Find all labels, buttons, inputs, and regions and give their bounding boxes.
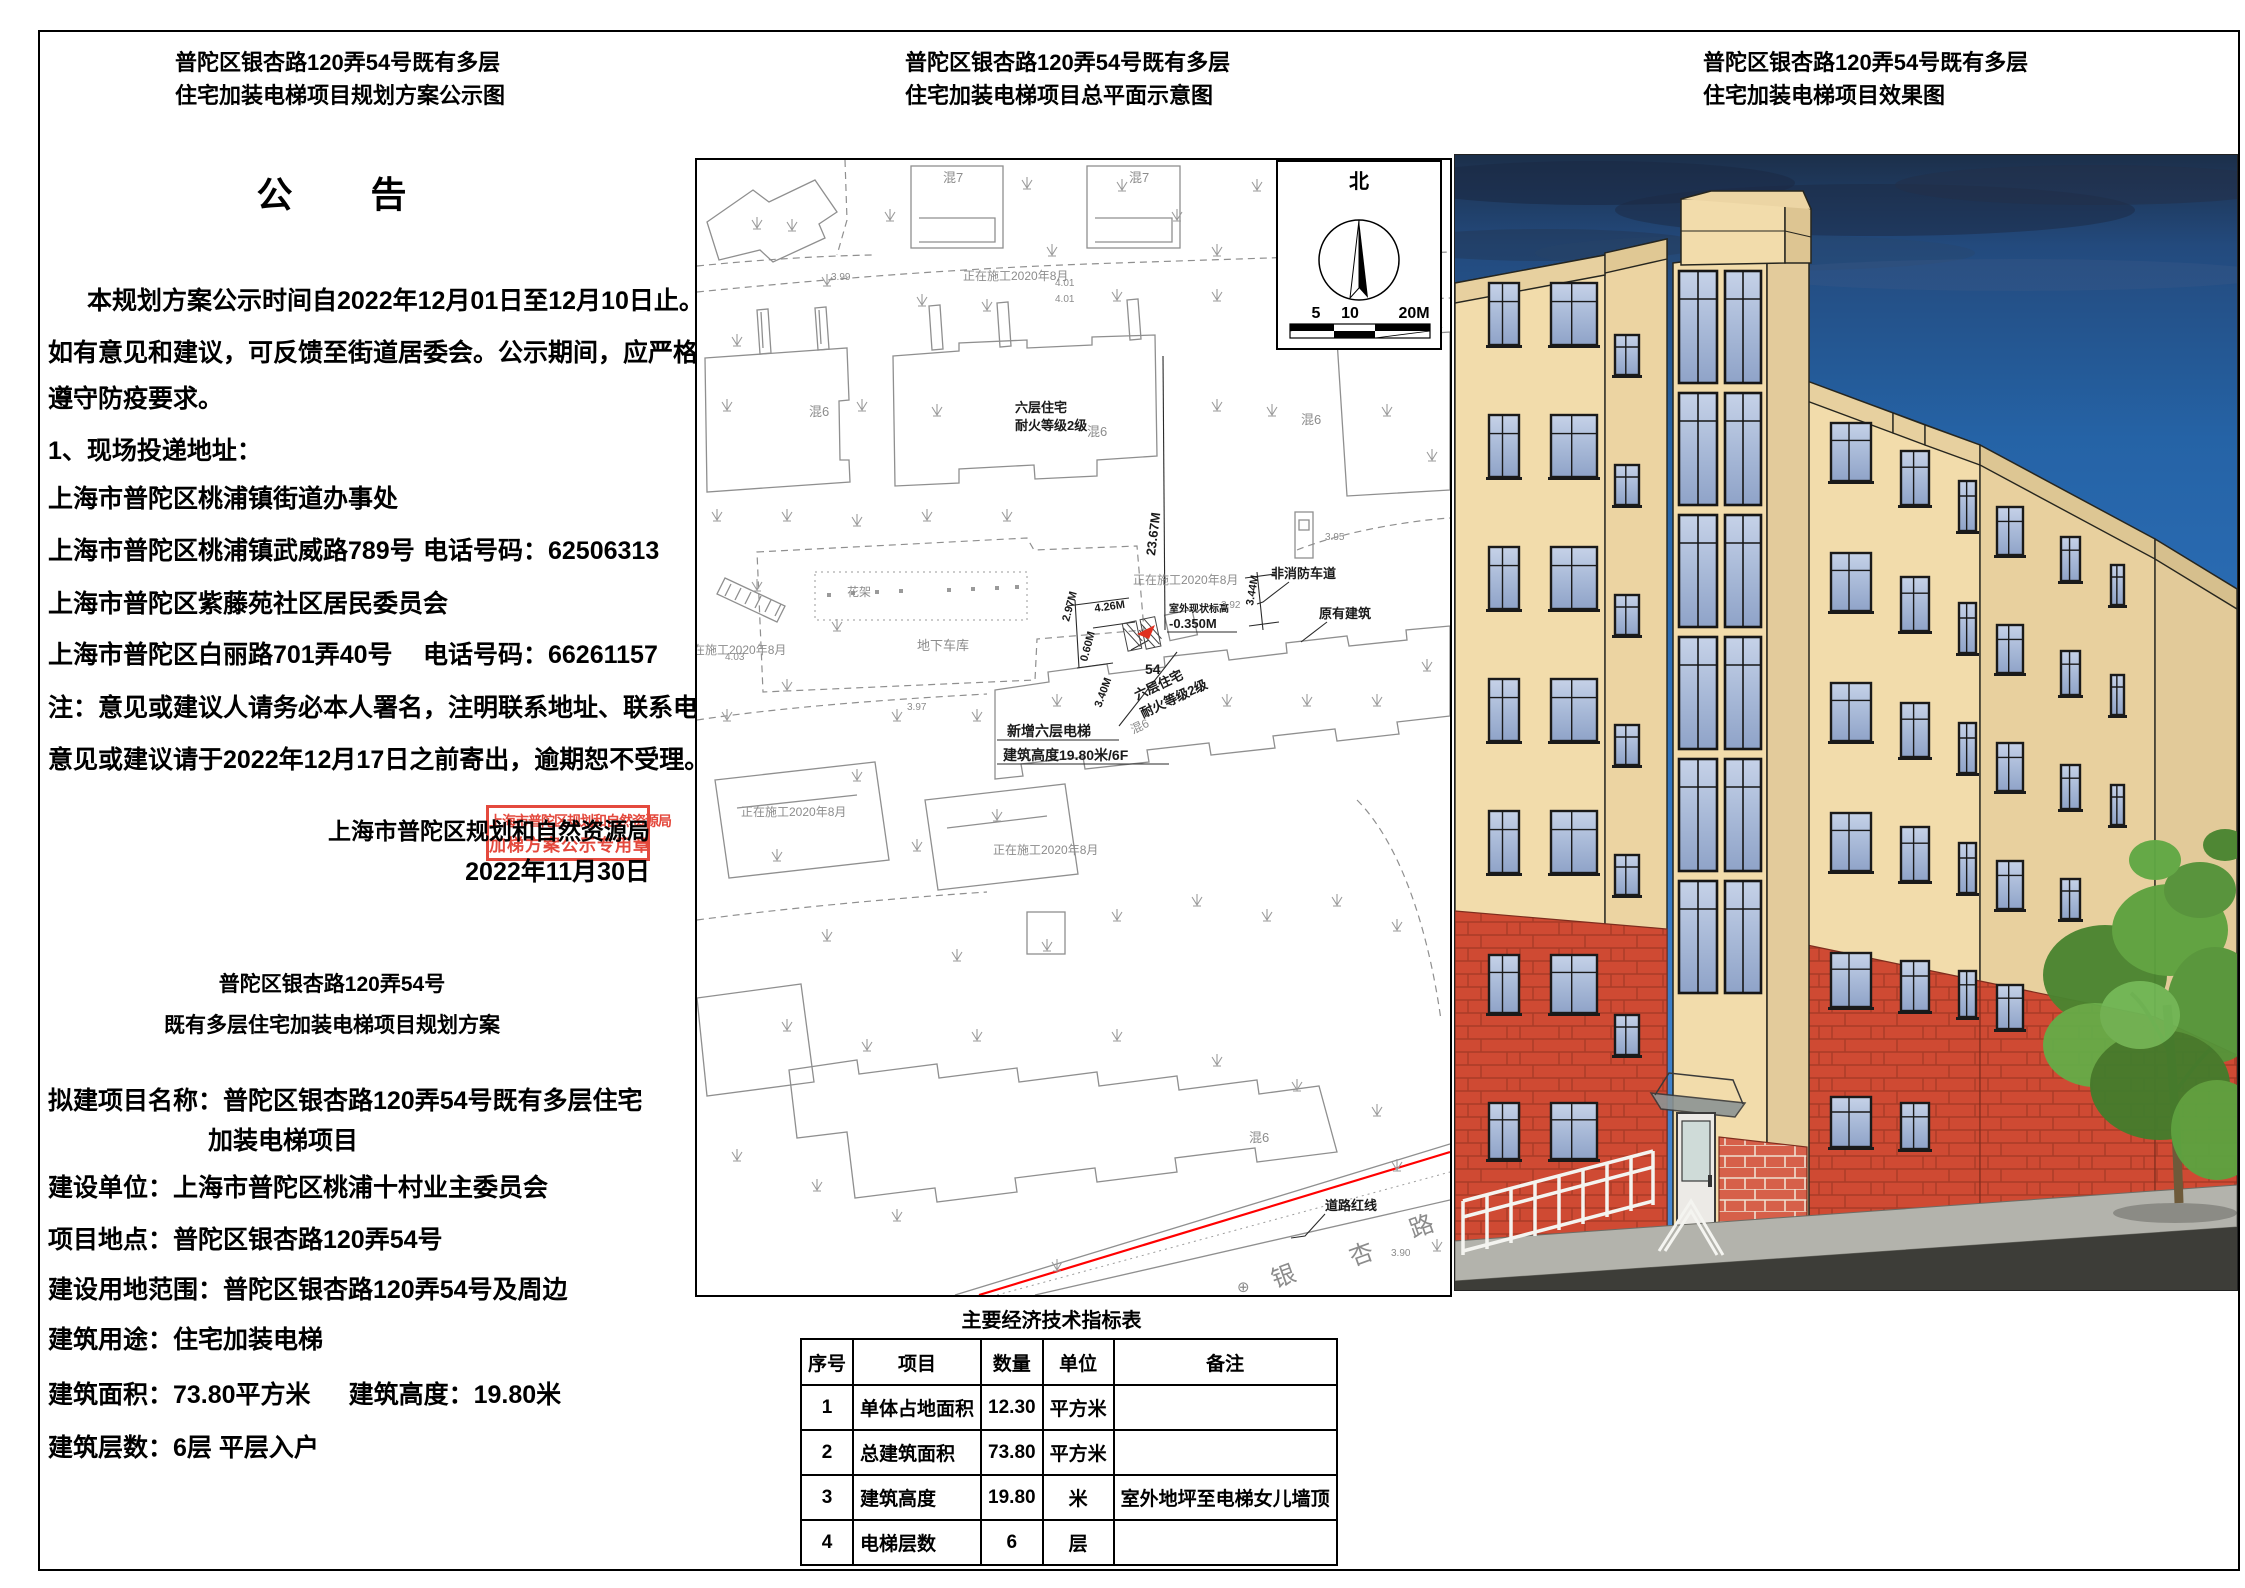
map-label: 正在施工2020年8月 [741, 805, 846, 819]
map-label: 3.90 [1391, 1248, 1411, 1259]
window [1956, 843, 1979, 896]
scale-bar [1290, 324, 1430, 338]
tree-symbol [1392, 919, 1402, 931]
window [1898, 827, 1932, 884]
window [1956, 723, 1979, 776]
elevator-glass-panel [1725, 393, 1761, 505]
building-rendering [1455, 155, 2237, 1290]
eco-table-cell: 73.80 [981, 1430, 1043, 1475]
compass-scale-box: 北 5 10 20M [1276, 160, 1442, 350]
window [1486, 547, 1522, 612]
window [1828, 553, 1874, 614]
window [1548, 547, 1600, 612]
note-line: 意见或建议请于2022年12月17日之前寄出，逾期恕不受理。 [48, 740, 709, 776]
tree-symbol [1427, 449, 1437, 461]
tree-symbol [1212, 244, 1222, 256]
north-label: 北 [1349, 170, 1369, 193]
window [1994, 985, 2026, 1032]
address-text: 上海市普陀区紫藤苑社区居民委员会 [48, 590, 448, 618]
tree-symbol [1212, 1054, 1222, 1066]
map-label: 3.97 [907, 702, 927, 713]
col-header: 单位 [1043, 1339, 1114, 1385]
right-panel-title: 普陀区银杏路120弄54号既有多层 住宅加装电梯项目效果图 [1703, 46, 2028, 112]
map-label: 4.01 [1055, 294, 1075, 305]
building-rendering-drawing [1455, 155, 2237, 1290]
map-label: 路 [1406, 1210, 1438, 1244]
address-line: 上海市普陀区紫藤苑社区居民委员会 [48, 584, 448, 620]
window [2058, 537, 2083, 584]
tree-symbol [852, 514, 862, 526]
detail-line: 项目地点：普陀区银杏路120弄54号 [48, 1220, 443, 1256]
tree-symbol [1422, 659, 1432, 671]
tree-symbol [917, 294, 927, 306]
address-phone: 电话号码：66261157 [423, 635, 658, 671]
window [1486, 811, 1522, 876]
window [2108, 675, 2127, 718]
window [1486, 679, 1522, 744]
col-header: 备注 [1114, 1339, 1337, 1385]
window [1994, 743, 2026, 794]
col-header: 项目 [853, 1339, 981, 1385]
tree-symbol [1382, 404, 1392, 416]
address-phone: 电话号码：62506313 [423, 531, 659, 567]
map-label: 混6 [1249, 1130, 1269, 1145]
window [1828, 683, 1874, 744]
eco-table-cell: 6 [981, 1520, 1043, 1565]
stamp-line2: 加梯方案公示专用章 [489, 831, 647, 856]
eco-table-cell: 层 [1043, 1520, 1114, 1565]
map-label: 室外现状标高 [1169, 602, 1229, 615]
map-label: 54 [1145, 661, 1161, 677]
tree-symbol [885, 209, 895, 221]
window [1548, 415, 1600, 480]
window [1612, 725, 1642, 768]
eco-table-row: 1单体占地面积12.30平方米 [801, 1385, 1337, 1430]
tree-symbol [1047, 244, 1057, 256]
window [2058, 879, 2083, 922]
window [1486, 283, 1522, 348]
elevator-glass-panel [1679, 881, 1717, 993]
window [1956, 971, 1979, 1020]
middle-title-line1: 普陀区银杏路120弄54号既有多层 [905, 46, 1230, 79]
tree-symbol [1372, 1104, 1382, 1116]
window [1898, 577, 1932, 634]
stamp-line1: 上海市普陀区规划和自然资源局 [489, 811, 647, 831]
map-label: 道路红线 [1325, 1198, 1377, 1213]
detail-line: 建筑用途：住宅加装电梯 [48, 1320, 323, 1356]
middle-title-line2: 住宅加装电梯项目总平面示意图 [905, 79, 1230, 112]
map-label: 混6 [1128, 716, 1151, 737]
elevator-glass-panel [1679, 393, 1717, 505]
tree-symbol [722, 709, 732, 721]
planning-notice-sheet: 普陀区银杏路120弄54号既有多层 住宅加装电梯项目规划方案公示图 公 告 本规… [0, 0, 2245, 1588]
eco-table-cell: 平方米 [1043, 1385, 1114, 1430]
address-text: 上海市普陀区桃浦镇街道办事处 [48, 485, 398, 513]
eco-table-cell: 3 [801, 1475, 853, 1520]
tree-symbol [782, 1019, 792, 1031]
window [1612, 855, 1642, 898]
tree-symbol [982, 299, 992, 311]
tree-symbol [1112, 1029, 1122, 1041]
elevator-glass-panel [1679, 515, 1717, 627]
tree-symbol [772, 849, 782, 861]
note-line: 注：意见或建议人请务必本人署名，注明联系地址、联系电话。 [48, 688, 748, 724]
tree-symbol [1267, 404, 1277, 416]
col-header: 序号 [801, 1339, 853, 1385]
tree-symbol [822, 929, 832, 941]
tree-symbol [787, 219, 797, 231]
map-label: 3.40M [1093, 676, 1115, 709]
map-label: 正在施工2020年8月 [1133, 573, 1238, 587]
eco-table-cell: 12.30 [981, 1385, 1043, 1430]
eco-table-header-row: 序号 项目 数量 单位 备注 [801, 1339, 1337, 1385]
window [1828, 1097, 1874, 1150]
window [1612, 465, 1642, 508]
window [1898, 451, 1932, 508]
map-label: 23.67M [1143, 511, 1163, 556]
tree-symbol [1112, 289, 1122, 301]
map-label: 正在施工2020年8月 [697, 643, 786, 657]
map-label: 2.97M [1060, 590, 1080, 623]
address-list-heading: 1、现场投递地址： [48, 431, 262, 467]
scheme-title: 普陀区银杏路120弄54号 既有多层住宅加装电梯项目规划方案 [82, 964, 582, 1046]
tree-symbol [1022, 177, 1032, 189]
map-label: 非消防车道 [1271, 566, 1336, 581]
map-label: 六层住宅 [1015, 400, 1067, 415]
eco-table-cell: 4 [801, 1520, 853, 1565]
right-title-line2: 住宅加装电梯项目效果图 [1703, 79, 2028, 112]
eco-table-cell: 平方米 [1043, 1430, 1114, 1475]
tree-symbol [922, 509, 932, 521]
window [1898, 961, 1932, 1014]
window [1898, 1103, 1932, 1152]
tree-symbol [752, 579, 762, 591]
elevator-glass-panel [1725, 759, 1761, 871]
eco-table-row: 4电梯层数6层 [801, 1520, 1337, 1565]
window [1612, 335, 1642, 378]
eco-table-title: 主要经济技术指标表 [800, 1304, 1303, 1333]
map-label: 混6 [1087, 424, 1107, 439]
window [2058, 651, 2083, 698]
detail-line: 拟建项目名称：普陀区银杏路120弄54号既有多层住宅 [48, 1081, 643, 1117]
tree-symbol [992, 809, 1002, 821]
tree-symbol [952, 949, 962, 961]
eco-table-cell: 总建筑面积 [853, 1430, 981, 1475]
map-label: ⊕ [1237, 1279, 1250, 1295]
map-label: 新增六层电梯 [1007, 723, 1091, 739]
map-label: 花架 [847, 584, 871, 599]
tree-symbol [712, 509, 722, 521]
left-panel-title: 普陀区银杏路120弄54号既有多层 住宅加装电梯项目规划方案公示图 [175, 46, 505, 112]
scale-tick-20m: 20M [1398, 305, 1429, 322]
eco-table-cell: 19.80 [981, 1475, 1043, 1520]
map-label: 原有建筑 [1319, 606, 1371, 621]
scale-tick-5: 5 [1312, 305, 1321, 322]
elevator-glass-panel [1725, 881, 1761, 993]
window [1828, 423, 1874, 484]
eco-table-cell [1114, 1385, 1337, 1430]
tree-symbol [972, 1029, 982, 1041]
window [1898, 703, 1932, 760]
map-label: 4.26M [1094, 599, 1126, 615]
tree-symbol [1222, 694, 1232, 706]
map-label: 银 [1268, 1260, 1300, 1294]
middle-panel-title: 普陀区银杏路120弄54号既有多层 住宅加装电梯项目总平面示意图 [905, 46, 1230, 112]
window [1548, 811, 1600, 876]
intro-line: 如有意见和建议，可反馈至街道居委会。公示期间，应严格 [48, 333, 698, 369]
window [1548, 1103, 1600, 1162]
tree-symbol [1212, 399, 1222, 411]
tree-symbol [1042, 939, 1052, 951]
eco-table-cell [1114, 1430, 1337, 1475]
map-label: 混6 [1301, 412, 1321, 427]
scheme-title-line1: 普陀区银杏路120弄54号 [82, 964, 582, 1005]
eco-table-cell: 1 [801, 1385, 853, 1430]
map-label: 混6 [809, 404, 829, 419]
elevator-glass-panel [1679, 759, 1717, 871]
detail-segment: 建筑面积：73.80平方米 [48, 1381, 311, 1409]
eco-table-cell [1114, 1520, 1337, 1565]
elevator-glass-panel [1725, 637, 1761, 749]
detail-line: 加装电梯项目 [208, 1121, 358, 1157]
map-label: 耐火等级2级 [1015, 418, 1088, 433]
tree-symbol [722, 399, 732, 411]
window [1828, 953, 1874, 1010]
map-label: 3.92 [1221, 600, 1241, 611]
tree-symbol [752, 217, 762, 229]
window [1994, 861, 2026, 912]
tree-symbol [1332, 894, 1342, 906]
window [1612, 1015, 1642, 1058]
tree-symbol [782, 509, 792, 521]
tree-symbol [1212, 289, 1222, 301]
window [1828, 813, 1874, 874]
tree-symbol [1112, 909, 1122, 921]
window [2058, 765, 2083, 812]
col-header: 数量 [981, 1339, 1043, 1385]
eco-table-cell: 电梯层数 [853, 1520, 981, 1565]
right-title-line1: 普陀区银杏路120弄54号既有多层 [1703, 46, 2028, 79]
eco-table-cell: 室外地坪至电梯女儿墙顶 [1114, 1475, 1337, 1520]
tree-symbol [1192, 894, 1202, 906]
north-compass-icon: 北 5 10 20M [1278, 162, 1440, 348]
address-line: 上海市普陀区桃浦镇武威路789号 电话号码：62506313 [48, 531, 415, 567]
tree-symbol [892, 1209, 902, 1221]
map-label: 杏 [1346, 1238, 1378, 1272]
map-dimension-lines [997, 356, 1327, 1238]
map-label: 建筑高度19.80米/6F [1003, 747, 1129, 763]
tree-symbol [1432, 1239, 1442, 1251]
tree-symbol [1002, 509, 1012, 521]
window [2108, 785, 2127, 828]
address-line: 上海市普陀区白丽路701弄40号 电话号码：66261157 [48, 635, 393, 671]
map-label: 3.99 [831, 272, 851, 283]
map-label: 4.01 [1055, 278, 1075, 289]
window [1994, 507, 2026, 558]
tree-symbol [1262, 909, 1272, 921]
eco-table-cell: 单体占地面积 [853, 1385, 981, 1430]
tree-symbol [912, 839, 922, 851]
address-text: 上海市普陀区桃浦镇武威路789号 [48, 537, 415, 565]
tree-symbol [1252, 179, 1262, 191]
address-line: 上海市普陀区桃浦镇街道办事处 [48, 479, 398, 515]
eco-table-cell: 2 [801, 1430, 853, 1475]
tree-symbol [972, 709, 982, 721]
eco-table-row: 3建筑高度19.80米室外地坪至电梯女儿墙顶 [801, 1475, 1337, 1520]
detail-segment: 建筑高度：19.80米 [349, 1381, 562, 1409]
tree-symbol [862, 1039, 872, 1051]
window [1994, 625, 2026, 676]
tree-symbol [812, 1179, 822, 1191]
tree-symbol [852, 769, 862, 781]
eco-indicator-table: 序号 项目 数量 单位 备注 1单体占地面积12.30平方米2总建筑面积73.8… [800, 1338, 1338, 1566]
scale-tick-10: 10 [1341, 305, 1359, 322]
map-label: -0.350M [1169, 616, 1217, 631]
left-title-line1: 普陀区银杏路120弄54号既有多层 [175, 46, 505, 79]
elevator-glass-panel [1679, 271, 1717, 383]
tree-symbol [832, 619, 842, 631]
window [1486, 1103, 1522, 1162]
window [1548, 955, 1600, 1016]
map-label: 地下车库 [917, 638, 969, 653]
intro-line: 遵守防疫要求。 [48, 379, 223, 415]
window [1612, 595, 1642, 638]
eco-table-cell: 米 [1043, 1475, 1114, 1520]
detail-line: 建设单位：上海市普陀区桃浦十村业主委员会 [48, 1168, 548, 1204]
tree-symbol [892, 709, 902, 721]
tree-symbol [732, 1149, 742, 1161]
eco-table-cell: 建筑高度 [853, 1475, 981, 1520]
map-label: 混7 [943, 170, 963, 185]
address-text: 上海市普陀区白丽路701弄40号 [48, 641, 393, 669]
window [1548, 679, 1600, 744]
tree-symbol [1302, 694, 1312, 706]
map-label: 正在施工2020年8月 [993, 843, 1098, 857]
tree-symbol [932, 404, 942, 416]
window [1486, 955, 1522, 1016]
tree-symbol [1052, 694, 1062, 706]
map-label: 混7 [1129, 170, 1149, 185]
red-official-stamp: 上海市普陀区规划和自然资源局 加梯方案公示专用章 [486, 805, 650, 861]
window [1956, 603, 1979, 656]
map-label: 正在施工2020年8月 [963, 269, 1068, 283]
elevator-glass-panel [1679, 637, 1717, 749]
window [1548, 283, 1600, 348]
window [1956, 481, 1979, 534]
tree-symbol [782, 679, 792, 691]
tree-symbol [857, 399, 867, 411]
tree-symbol [732, 334, 742, 346]
tree-symbol [1117, 179, 1127, 191]
eco-table-row: 2总建筑面积73.80平方米 [801, 1430, 1337, 1475]
elevator-glass-panel [1725, 271, 1761, 383]
left-title-line2: 住宅加装电梯项目规划方案公示图 [175, 79, 505, 112]
window [1486, 415, 1522, 480]
elevator-glass-panel [1725, 515, 1761, 627]
tree-symbol [1372, 694, 1382, 706]
intro-line: 本规划方案公示时间自2022年12月01日至12月10日止。 [48, 281, 704, 317]
notice-heading: 公 告 [75, 166, 590, 218]
map-dotted-lines [815, 572, 1450, 1295]
detail-line: 建设用地范围：普陀区银杏路120弄54号及周边 [48, 1270, 568, 1306]
map-label: 3.95 [1325, 532, 1345, 543]
detail-line: 建筑层数：6层 平层入户 [48, 1428, 319, 1464]
scheme-title-line2: 既有多层住宅加装电梯项目规划方案 [82, 1005, 582, 1046]
map-label: 3.44M [1244, 574, 1261, 606]
detail-line: 建筑面积：73.80平方米建筑高度：19.80米 [48, 1375, 561, 1411]
window [2108, 565, 2127, 608]
